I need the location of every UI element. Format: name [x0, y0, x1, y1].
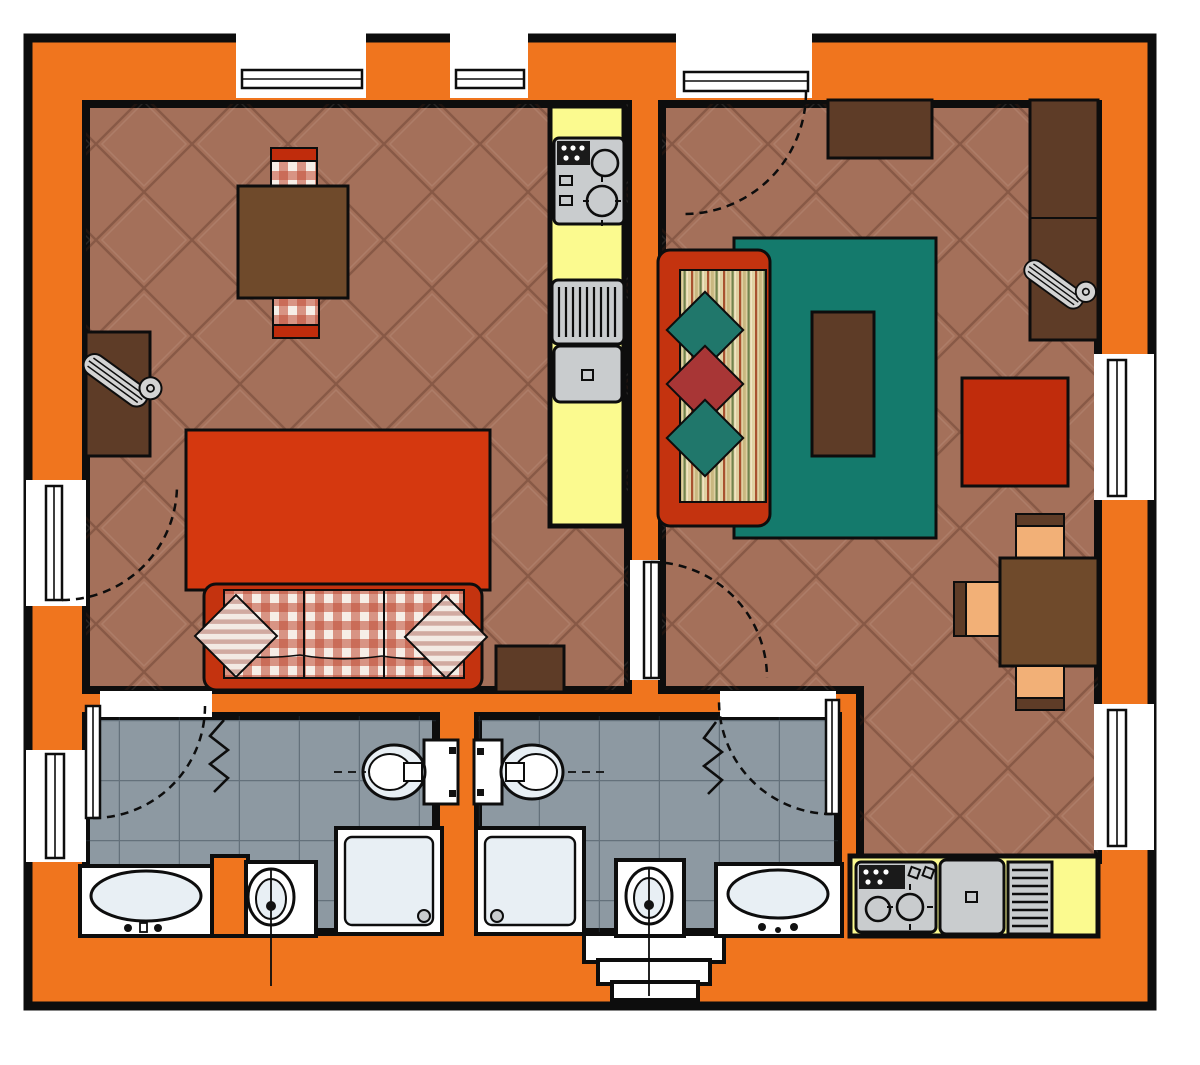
window-right-upper [1108, 360, 1126, 496]
sink-with-drainer [940, 860, 1052, 934]
kitchen-counter [550, 106, 624, 526]
chair-back [1016, 698, 1064, 710]
dining-table [1000, 558, 1098, 666]
red-armchair-table [962, 378, 1068, 486]
shower-tray [336, 828, 442, 934]
window-top-1 [242, 70, 362, 88]
sofa-checkered [195, 584, 487, 690]
bathtub [80, 866, 212, 936]
window-right-lower [1108, 710, 1126, 846]
coffee-table [812, 312, 874, 456]
red-rug [186, 430, 490, 590]
chair-back [273, 325, 319, 338]
peach-chair [1016, 666, 1064, 698]
drain-icon [418, 910, 430, 922]
cooktop [554, 138, 624, 226]
kitchenette-counter [850, 856, 1098, 936]
side-table [496, 646, 564, 692]
wall-pier [212, 856, 248, 936]
chair-back [271, 148, 317, 161]
sink-basin [940, 860, 1004, 934]
floor-plan-canvas [0, 0, 1200, 1065]
wall-cabinet [828, 100, 932, 158]
chair-back [954, 582, 966, 636]
peach-chair [966, 582, 1002, 636]
chair-back [1016, 514, 1064, 526]
dining-table [238, 186, 348, 298]
checkered-chair [273, 298, 319, 325]
floor-plan [0, 0, 1200, 1065]
door-cut [720, 691, 836, 717]
cooktop [856, 862, 936, 932]
peach-chair [1016, 526, 1064, 558]
sink-basin [554, 346, 622, 402]
wardrobe-sideboard [1020, 100, 1100, 340]
door-cut [100, 691, 212, 717]
window-left-bathroom [46, 754, 64, 858]
sink-with-drainer [552, 280, 624, 402]
striped-sofa [658, 250, 770, 526]
drain-icon [491, 910, 503, 922]
checkered-chair [271, 161, 317, 188]
shower-tray [476, 828, 584, 934]
window-top-2 [456, 70, 524, 88]
bathtub [716, 864, 842, 936]
